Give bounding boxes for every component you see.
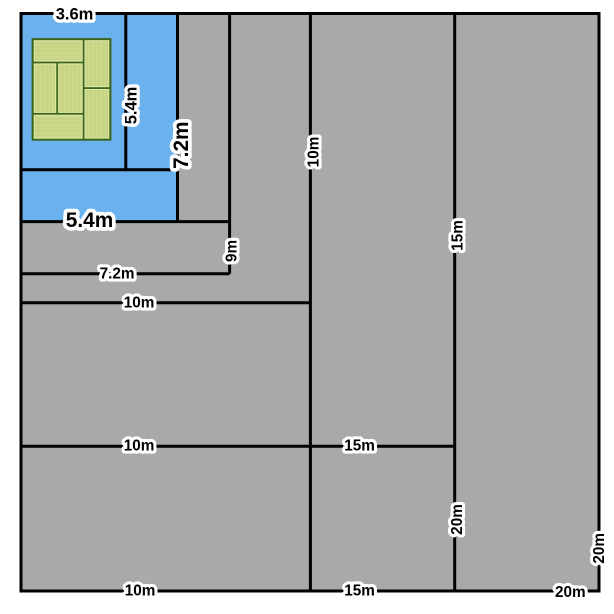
svg-text:7.2m: 7.2m (100, 265, 135, 282)
svg-text:15m: 15m (450, 220, 467, 251)
svg-text:10m: 10m (124, 438, 155, 455)
svg-text:15m: 15m (344, 583, 375, 600)
svg-text:20m: 20m (591, 533, 608, 564)
svg-text:10m: 10m (305, 137, 322, 168)
svg-text:20m: 20m (449, 504, 466, 535)
svg-text:7.2m: 7.2m (170, 121, 193, 168)
svg-text:20m: 20m (555, 584, 586, 601)
svg-text:15m: 15m (344, 438, 375, 455)
svg-text:3.6m: 3.6m (56, 6, 94, 24)
svg-text:9m: 9m (224, 240, 241, 262)
svg-text:5.4m: 5.4m (123, 87, 141, 125)
svg-text:10m: 10m (124, 294, 155, 311)
svg-text:5.4m: 5.4m (66, 209, 113, 232)
svg-text:10m: 10m (125, 583, 156, 600)
